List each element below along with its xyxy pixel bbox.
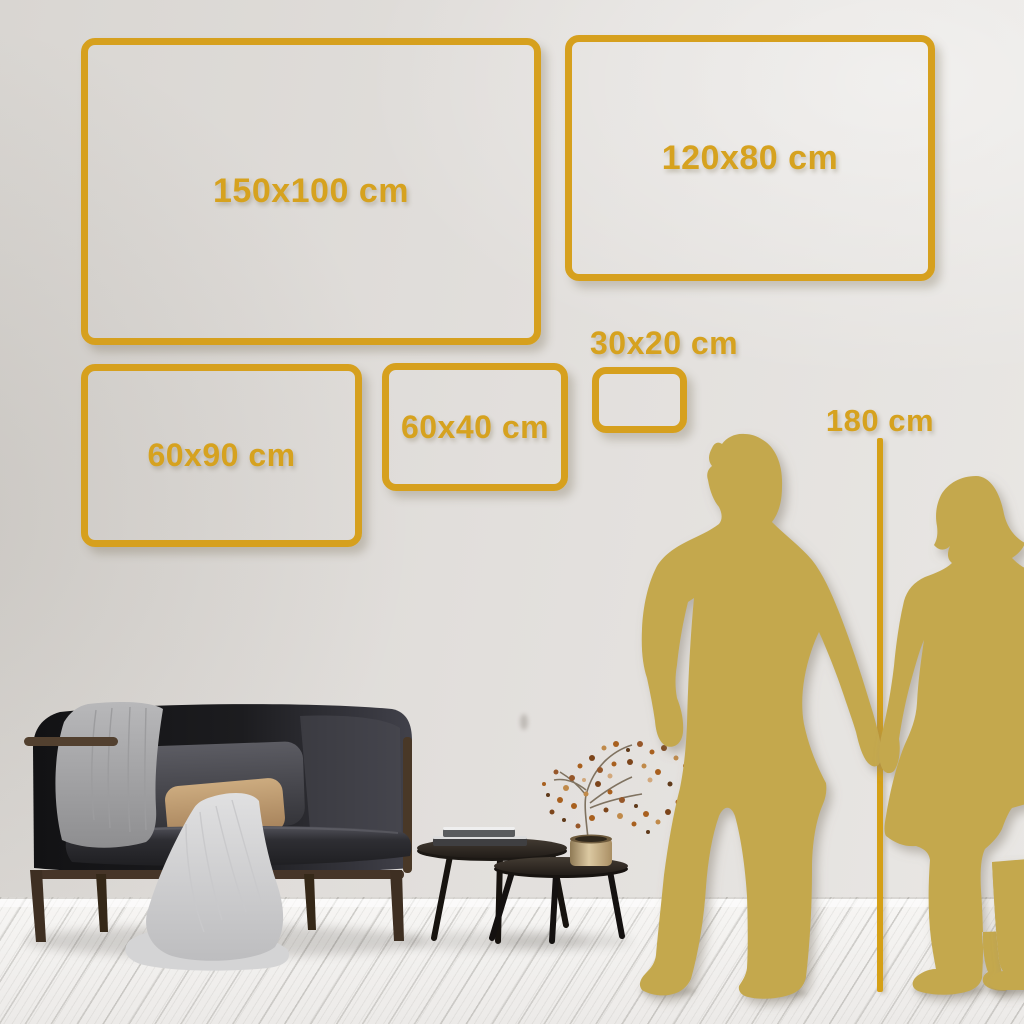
couple-silhouettes <box>640 434 1024 999</box>
room-illustration <box>0 0 1024 1024</box>
size-guide-scene: 150x100 cm 120x80 cm 60x90 cm 60x40 cm 3… <box>0 0 1024 1024</box>
man-silhouette <box>640 434 882 999</box>
books <box>433 827 527 846</box>
height-line <box>877 438 883 992</box>
sofa <box>24 702 425 971</box>
large-table <box>417 827 567 941</box>
coffee-tables <box>400 741 703 951</box>
gray-blanket <box>55 702 163 848</box>
wall-mark <box>520 714 528 730</box>
brass-vase <box>570 835 612 867</box>
